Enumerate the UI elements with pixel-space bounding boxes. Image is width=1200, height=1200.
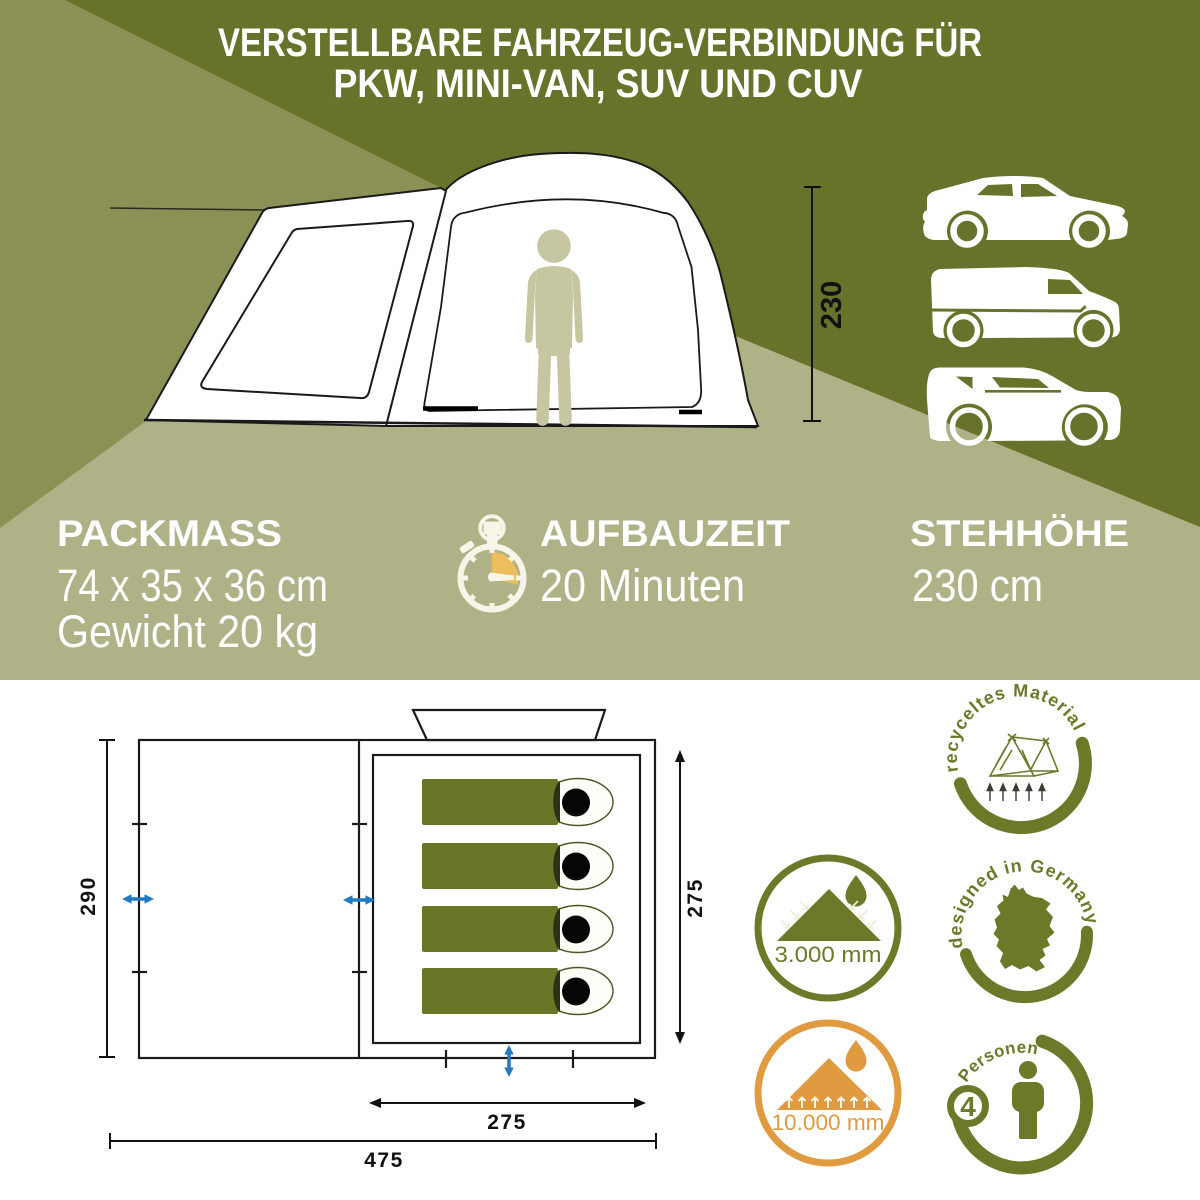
svg-text:PKW, MINI-VAN, SUV UND CUV: PKW, MINI-VAN, SUV UND CUV xyxy=(334,62,863,106)
svg-text:3.000 mm: 3.000 mm xyxy=(775,942,882,967)
svg-text:290: 290 xyxy=(77,876,100,916)
svg-text:230: 230 xyxy=(816,281,848,329)
svg-text:10.000 mm: 10.000 mm xyxy=(772,1110,885,1135)
svg-text:20 Minuten: 20 Minuten xyxy=(540,560,745,611)
svg-text:4: 4 xyxy=(960,1091,976,1122)
svg-text:230 cm: 230 cm xyxy=(912,560,1043,611)
svg-text:74 x 35 x 36 cm: 74 x 35 x 36 cm xyxy=(57,560,328,611)
svg-text:275: 275 xyxy=(487,1111,527,1134)
svg-text:275: 275 xyxy=(684,878,707,918)
svg-text:475: 475 xyxy=(364,1149,404,1172)
svg-text:STEHHÖHE: STEHHÖHE xyxy=(910,513,1129,554)
svg-text:PACKMASS: PACKMASS xyxy=(57,513,282,554)
svg-text:AUFBAUZEIT: AUFBAUZEIT xyxy=(540,513,790,554)
svg-text:VERSTELLBARE FAHRZEUG-VERBINDU: VERSTELLBARE FAHRZEUG-VERBINDUNG FÜR xyxy=(218,20,982,65)
svg-text:Gewicht 20 kg: Gewicht 20 kg xyxy=(57,606,318,657)
